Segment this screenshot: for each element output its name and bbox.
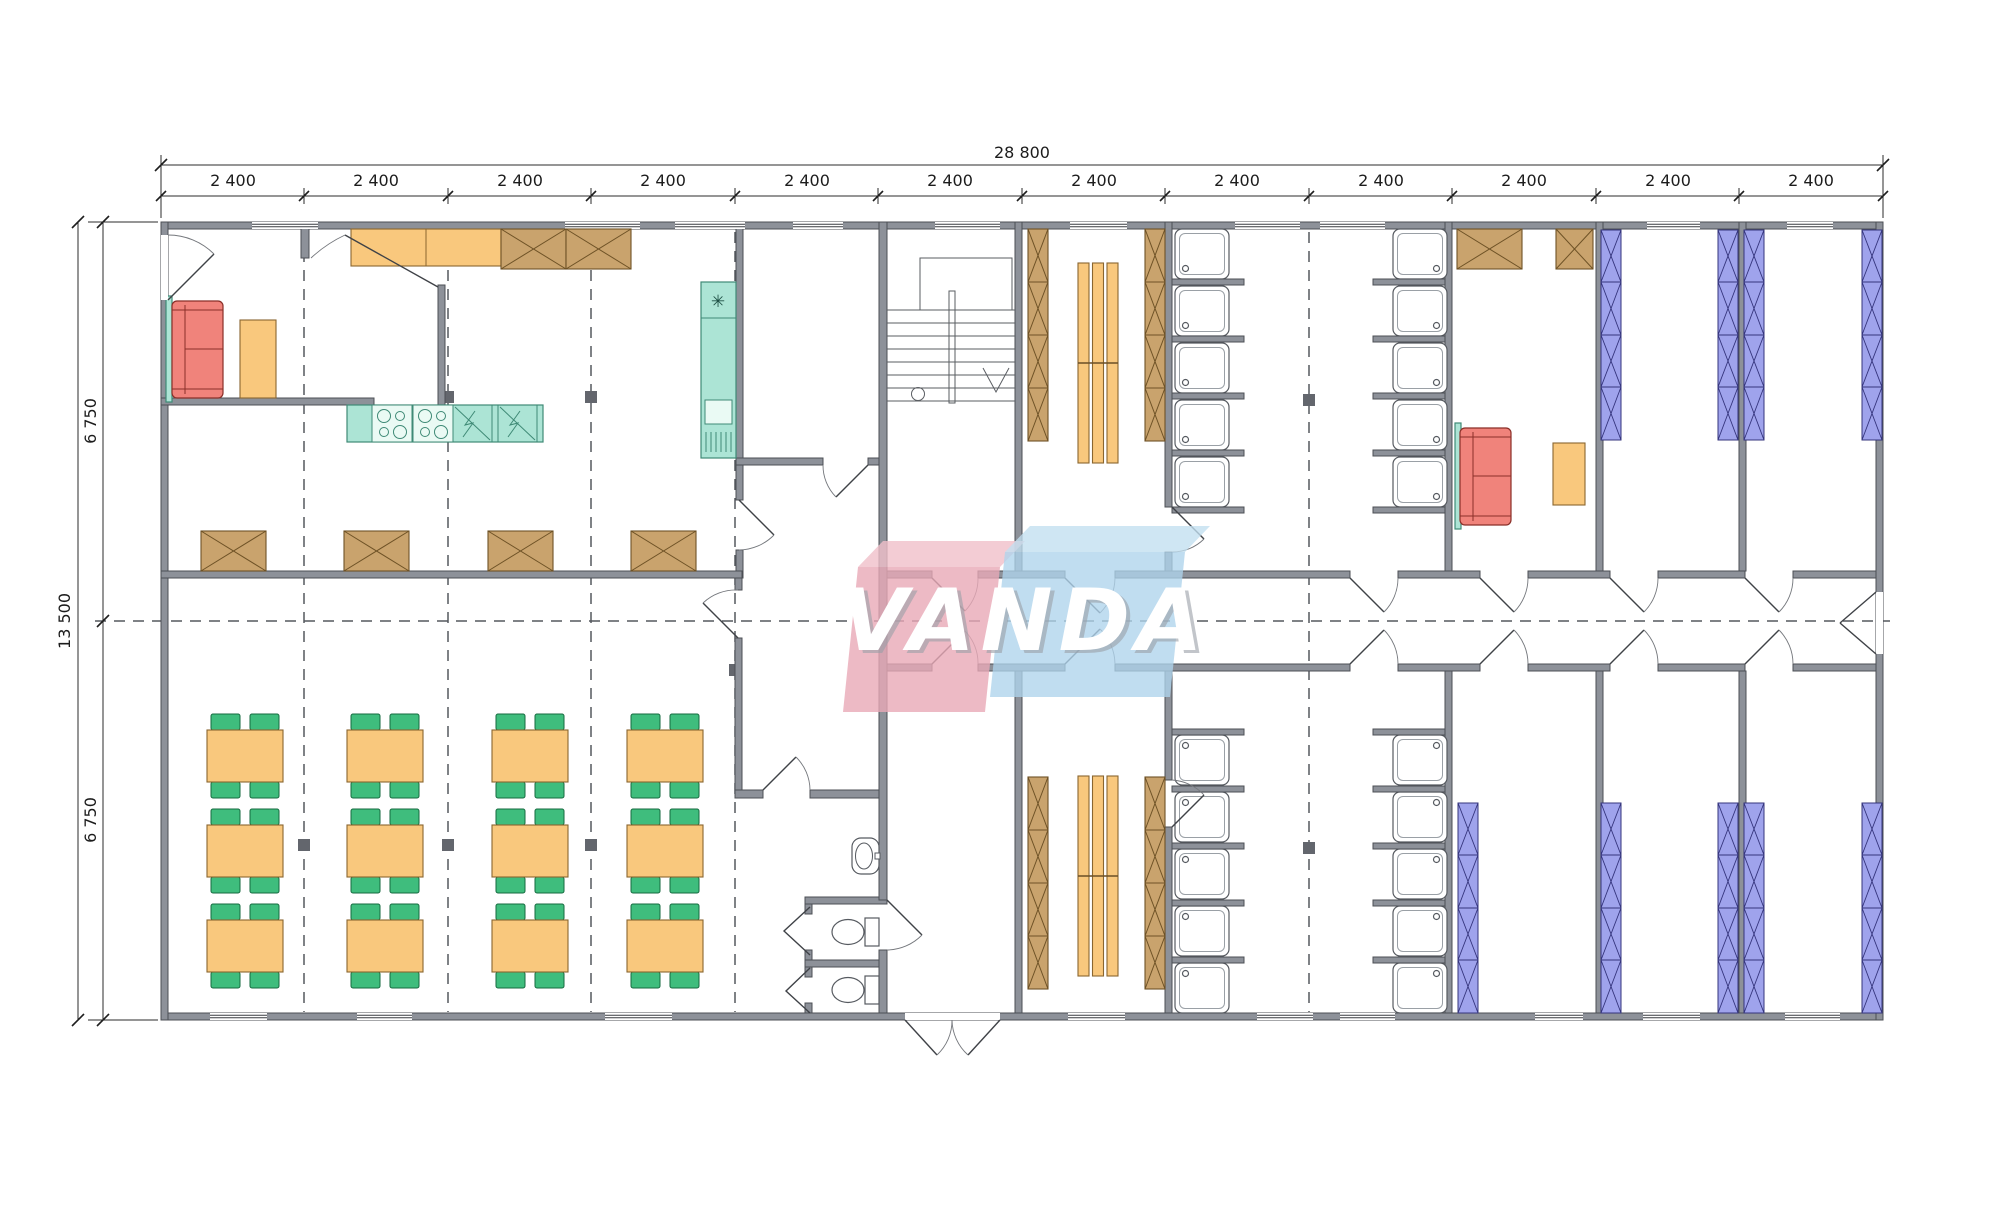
shower-stall [1393,400,1447,450]
drawing-sheet: ✳ [0,0,2000,1216]
sofa-side-panel [166,296,172,402]
kitchen-hall-door [739,500,774,550]
bedroom-door [1745,630,1793,664]
entrance-door-west [161,235,214,300]
shower-stall [1175,229,1229,279]
bunk-bed [1744,230,1764,440]
window [1340,1013,1395,1020]
lounge-east-door [1480,578,1528,612]
dim-label-total-height: 13 500 [55,593,74,649]
upper-cabinets [351,229,631,269]
watermark-pink-lid [858,541,1025,567]
bunk-bed [1862,230,1882,440]
shower-stall [1175,400,1229,450]
stove-icon [413,405,453,442]
bedroom-door [1480,630,1528,664]
dim-label-lower-half: 6 750 [81,797,100,843]
bench [1078,776,1118,976]
window [1647,222,1700,229]
bunk-bed [1862,803,1882,1013]
bunk-bed [1744,803,1764,1013]
window [357,1013,412,1020]
dim-label-bay: 2 400 [1501,171,1547,190]
window [1643,1013,1700,1020]
shower-stall [1393,792,1447,842]
dim-label-bay: 2 400 [640,171,686,190]
floor-plan-canvas: ✳ [0,0,2000,1216]
window [1320,222,1385,229]
dim-total-width: 28 800 [155,143,1889,218]
dining-area [207,714,703,988]
window [1535,1013,1583,1020]
window [210,1013,267,1020]
watermark-blue-lid [1005,526,1210,552]
shower-top-door [1350,578,1398,612]
freezer-icon: ✳ [711,292,725,312]
x-table [344,531,409,571]
hall-wc-door [887,900,922,950]
window [605,1013,672,1020]
fridge: ✳ [701,282,736,458]
sofa [172,301,223,398]
staircase [887,258,1015,403]
shower-stall [1393,229,1447,279]
dining-table [347,904,423,988]
lounge-east [1455,229,1593,529]
shower-stall [1175,735,1229,785]
watermark: VANDA VANDA [841,526,1212,712]
dim-label-bay: 2 400 [497,171,543,190]
locker-bank [1028,229,1048,441]
bedroom-door [1610,630,1658,664]
dining-hall-door [703,590,738,638]
cabinet-x-unit [1556,229,1593,269]
shower-stall [1393,963,1447,1013]
main-entrance-door [905,1013,1000,1055]
shower-stall [1175,849,1229,899]
window [1235,222,1300,229]
cabinet-x-unit [1457,229,1522,269]
dim-label-bay: 2 400 [927,171,973,190]
bunk-bed [1458,803,1478,1013]
bedroom-door [1745,578,1793,612]
wc-lobby-door [763,757,810,790]
dining-table [627,809,703,893]
toilet [832,918,879,946]
window [793,222,843,229]
dining-table [492,809,568,893]
dim-bays: 2 400 2 400 2 400 2 400 2 400 2 400 2 40… [156,171,1888,204]
window [1257,1013,1313,1020]
shower-stall [1175,457,1229,507]
watermark-text: VANDA [841,571,1208,671]
exit-door-east [1840,592,1883,654]
dining-table [207,904,283,988]
bunk-bed [1718,230,1738,440]
dining-table [627,904,703,988]
washbasin [852,838,880,874]
window [252,222,318,229]
dim-label-bay: 2 400 [1214,171,1260,190]
window [1787,222,1833,229]
locker-bank [1028,777,1048,989]
lounge-northwest [166,296,276,402]
window [565,222,640,229]
dim-label-bay: 2 400 [784,171,830,190]
bench [1078,263,1118,463]
cabinet-x-unit [501,229,566,269]
shower-stall [1175,343,1229,393]
x-table [201,531,266,571]
dining-table [347,809,423,893]
coffee-table [1553,443,1585,505]
dim-label-bay: 2 400 [1358,171,1404,190]
bunk-bed [1718,803,1738,1013]
stair-start-marker [912,388,925,401]
dining-table [492,904,568,988]
office-door [823,465,868,497]
kitchen-island [347,405,543,442]
window [935,222,1000,229]
window [675,222,745,229]
shower-stall [1393,286,1447,336]
coffee-table [240,320,276,398]
shower-stall [1175,792,1229,842]
shower-stall [1393,849,1447,899]
shower-stall [1393,906,1447,956]
shower-stall [1393,457,1447,507]
locker-bank [1145,777,1165,989]
dim-label-bay: 2 400 [210,171,256,190]
dim-label-total-width: 28 800 [994,143,1050,162]
dim-label-bay: 2 400 [1645,171,1691,190]
x-table [488,531,553,571]
dining-table [627,714,703,798]
dim-label-bay: 2 400 [1788,171,1834,190]
locker-bank [1145,229,1165,441]
bunk-bed [1601,230,1621,440]
dim-label-bay: 2 400 [353,171,399,190]
wc-room [784,838,880,1013]
shower-stall [1175,906,1229,956]
dining-table [347,714,423,798]
bunk-bed [1601,803,1621,1013]
shower-stall [1393,735,1447,785]
stove-icon [372,405,412,442]
shower-bottom-door [1350,630,1398,664]
bedroom-door [1610,578,1658,612]
shower-stall [1393,343,1447,393]
window [1068,1013,1125,1020]
dining-table [207,714,283,798]
sofa [1460,428,1511,525]
dining-table [492,714,568,798]
window [1785,1013,1840,1020]
x-table [631,531,696,571]
toilet [832,976,879,1004]
dim-label-bay: 2 400 [1071,171,1117,190]
window [1070,222,1127,229]
shower-stall [1175,286,1229,336]
dining-table [207,809,283,893]
dim-label-upper-half: 6 750 [81,398,100,444]
shower-stall [1175,963,1229,1013]
cabinet-x-unit [566,229,631,269]
